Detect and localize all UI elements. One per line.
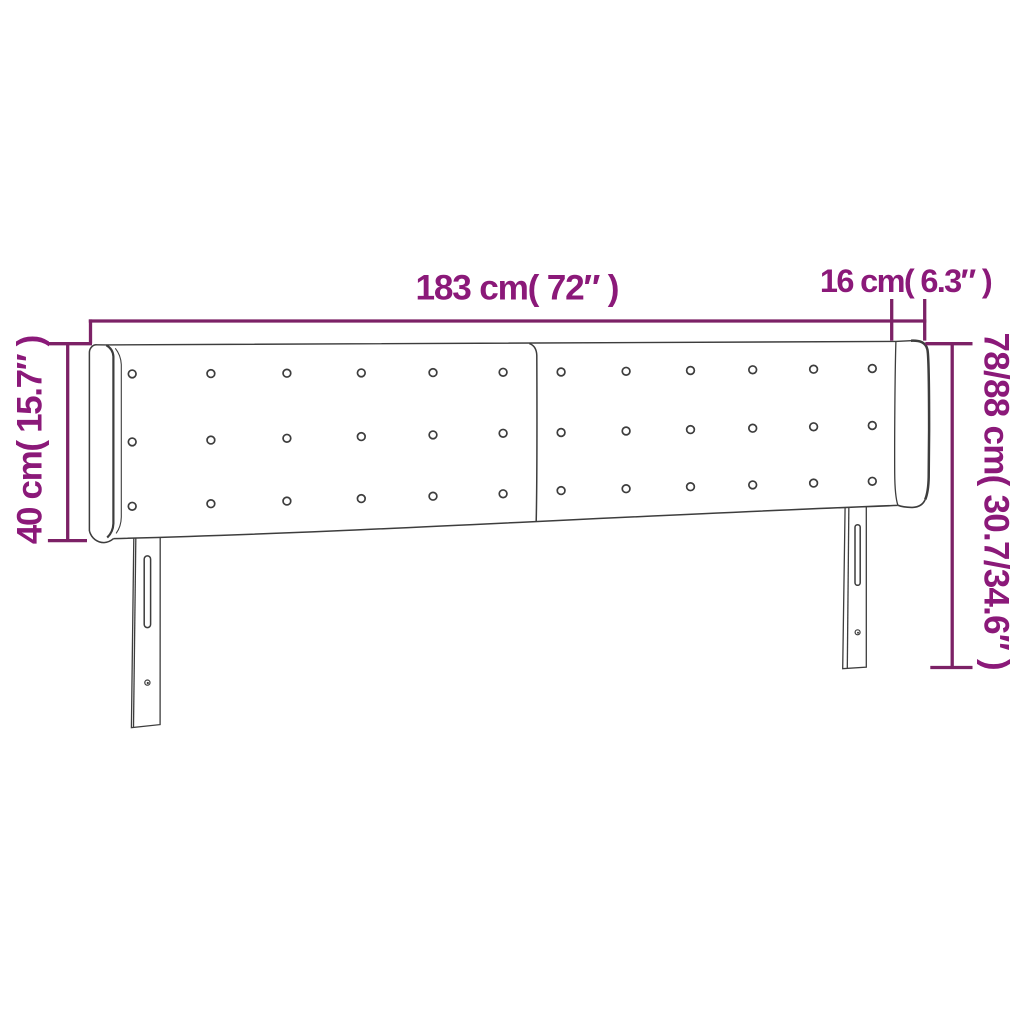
svg-text:78/88 cm( 30.7/34.6″ ): 78/88 cm( 30.7/34.6″ ) (977, 333, 1016, 670)
svg-text:40 cm( 15.7″ ): 40 cm( 15.7″ ) (11, 336, 50, 544)
svg-text:16 cm( 6.3″ ): 16 cm( 6.3″ ) (820, 263, 992, 299)
svg-text:183 cm( 72″ ): 183 cm( 72″ ) (416, 269, 619, 308)
